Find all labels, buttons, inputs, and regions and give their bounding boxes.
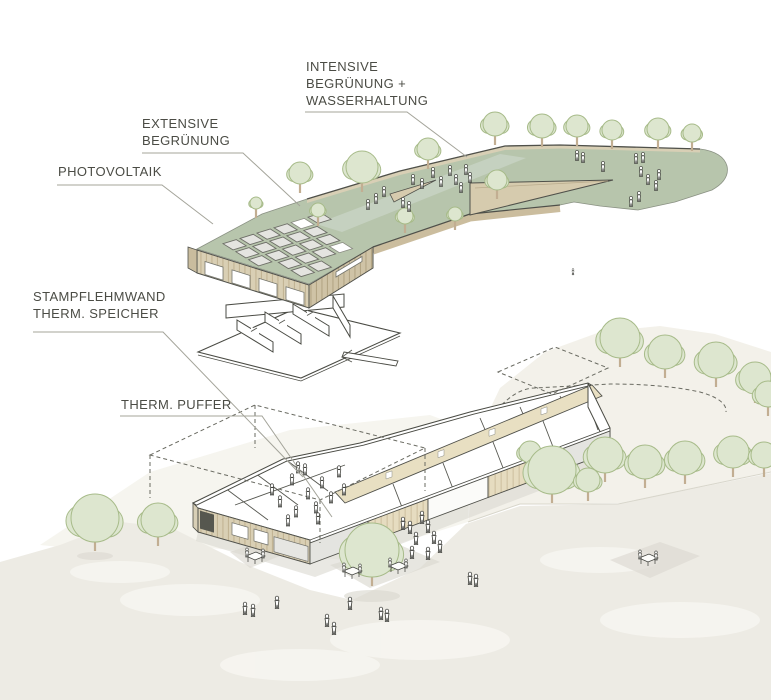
- ground-level-scene: [0, 318, 771, 700]
- person-figure: [401, 517, 405, 529]
- person-figure: [294, 506, 298, 517]
- person-figure: [329, 492, 333, 503]
- label-stampflehmwand: STAMPFLEHMWAND THERM. SPEICHER: [33, 288, 166, 322]
- person-figure: [634, 153, 637, 163]
- person-figure: [342, 484, 346, 495]
- label-intensive-begruenung: INTENSIVE BEGRÜNUNG + WASSERHALTUNG: [306, 58, 428, 109]
- tree: [564, 115, 590, 146]
- leader-line-intensive-begruenung: [305, 112, 467, 157]
- person-figure: [314, 502, 318, 513]
- rammed-earth-wall-layer: [198, 294, 400, 381]
- person-figure: [646, 174, 649, 184]
- person-figure: [637, 191, 640, 201]
- person-figure: [464, 164, 467, 174]
- person-figure: [251, 604, 255, 616]
- person-figure: [366, 199, 369, 209]
- person-figure: [401, 197, 404, 207]
- person-figure: [303, 464, 307, 475]
- person-figure: [316, 513, 320, 524]
- person-figure: [374, 193, 377, 203]
- person-figure: [410, 546, 414, 558]
- lone-figure: [572, 268, 574, 274]
- label-line: EXTENSIVE: [142, 115, 230, 132]
- person-figure: [474, 574, 478, 586]
- person-figure: [426, 547, 430, 559]
- person-figure: [286, 515, 290, 526]
- leader-line-photovoltaik: [57, 185, 213, 224]
- label-therm-puffer: THERM. PUFFER: [121, 396, 232, 413]
- person-figure: [382, 186, 385, 196]
- roof-layer-scene: [188, 112, 727, 308]
- person-figure: [439, 176, 442, 186]
- left-end-wall: [193, 503, 198, 532]
- tree: [645, 118, 671, 149]
- label-line: BEGRÜNUNG +: [306, 75, 428, 92]
- person-figure: [385, 609, 389, 621]
- label-line: BEGRÜNUNG: [142, 132, 230, 149]
- roof-facade-gable: [188, 247, 197, 273]
- person-figure: [629, 196, 632, 206]
- person-figure: [654, 180, 657, 190]
- label-extensive-begruenung: EXTENSIVE BEGRÜNUNG: [142, 115, 230, 149]
- label-line: WASSERHALTUNG: [306, 92, 428, 109]
- person-figure: [432, 531, 436, 543]
- person-figure: [348, 597, 352, 609]
- person-figure: [459, 182, 462, 192]
- person-figure: [438, 540, 442, 552]
- person-figure: [448, 165, 451, 175]
- person-figure: [454, 174, 457, 184]
- leader-line-extensive-begruenung: [142, 153, 300, 206]
- person-figure: [575, 150, 578, 160]
- label-line: INTENSIVE: [306, 58, 428, 75]
- person-figure: [641, 152, 644, 162]
- person-figure: [290, 474, 294, 485]
- person-figure: [407, 201, 410, 211]
- person-figure: [411, 174, 414, 184]
- person-figure: [468, 172, 471, 182]
- person-figure: [332, 622, 336, 634]
- person-figure: [657, 169, 660, 179]
- label-line: THERM. PUFFER: [121, 396, 232, 413]
- label-line: THERM. SPEICHER: [33, 305, 166, 322]
- person-figure: [601, 161, 604, 171]
- person-figure: [420, 178, 423, 188]
- person-figure: [306, 488, 310, 499]
- person-figure: [243, 602, 247, 614]
- person-figure: [275, 596, 279, 608]
- person-figure: [426, 520, 430, 532]
- person-figure: [278, 496, 282, 507]
- person-figure: [414, 532, 418, 544]
- person-figure: [270, 484, 274, 495]
- tree: [480, 112, 509, 145]
- person-figure: [431, 167, 434, 177]
- label-line: STAMPFLEHMWAND: [33, 288, 166, 305]
- person-figure: [468, 572, 472, 584]
- label-photovoltaik: PHOTOVOLTAIK: [58, 163, 162, 180]
- tree: [527, 114, 556, 147]
- person-figure: [581, 152, 584, 162]
- person-figure: [325, 614, 329, 626]
- label-line: PHOTOVOLTAIK: [58, 163, 162, 180]
- tree: [600, 120, 624, 149]
- person-figure: [639, 166, 642, 176]
- person-figure: [572, 268, 574, 274]
- person-figure: [337, 466, 341, 477]
- person-figure: [420, 511, 424, 523]
- tree: [681, 124, 702, 151]
- tree: [287, 162, 313, 193]
- person-figure: [408, 521, 412, 533]
- entrance-ramp: [342, 352, 398, 366]
- person-figure: [379, 607, 383, 619]
- person-figure: [320, 477, 324, 488]
- architectural-diagram: INTENSIVE BEGRÜNUNG + WASSERHALTUNG EXTE…: [0, 0, 771, 700]
